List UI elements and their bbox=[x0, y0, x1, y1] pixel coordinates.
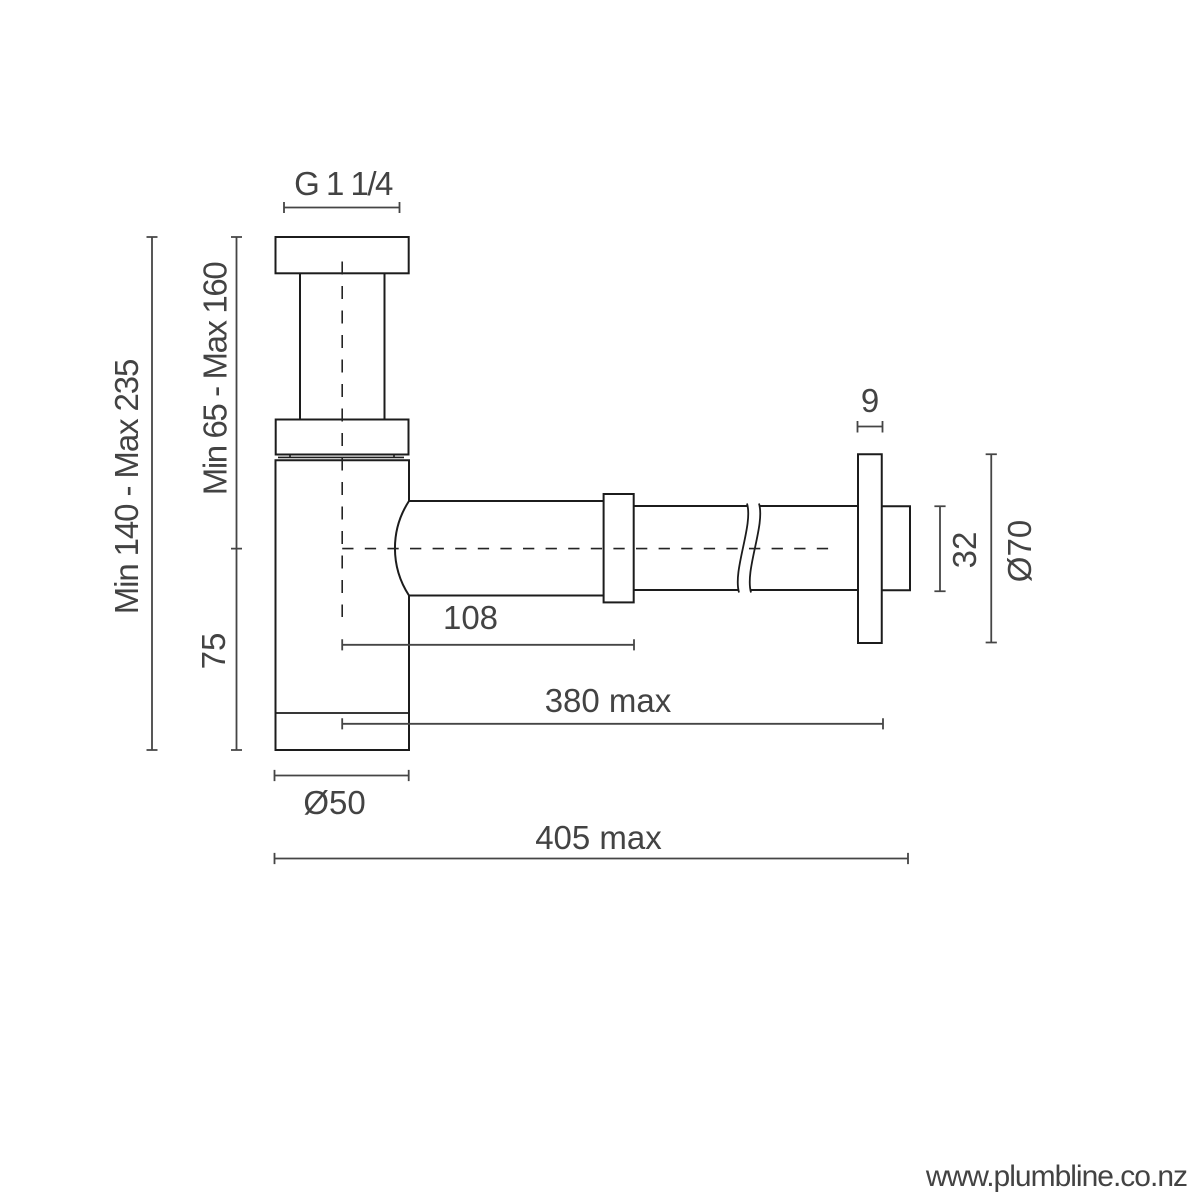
svg-text:Min 65 - Max 160: Min 65 - Max 160 bbox=[197, 262, 234, 496]
svg-text:Ø70: Ø70 bbox=[1001, 520, 1038, 582]
svg-text:G 1 1/4: G 1 1/4 bbox=[294, 165, 393, 202]
svg-text:9: 9 bbox=[861, 382, 879, 419]
svg-text:www.plumbline.co.nz: www.plumbline.co.nz bbox=[925, 1160, 1187, 1193]
svg-text:380 max: 380 max bbox=[545, 682, 672, 719]
svg-text:75: 75 bbox=[195, 633, 232, 670]
svg-text:32: 32 bbox=[946, 532, 983, 569]
svg-text:108: 108 bbox=[443, 599, 498, 636]
svg-text:Min 140 - Max 235: Min 140 - Max 235 bbox=[108, 360, 145, 615]
svg-text:405 max: 405 max bbox=[535, 819, 662, 856]
svg-text:Ø50: Ø50 bbox=[303, 784, 365, 821]
